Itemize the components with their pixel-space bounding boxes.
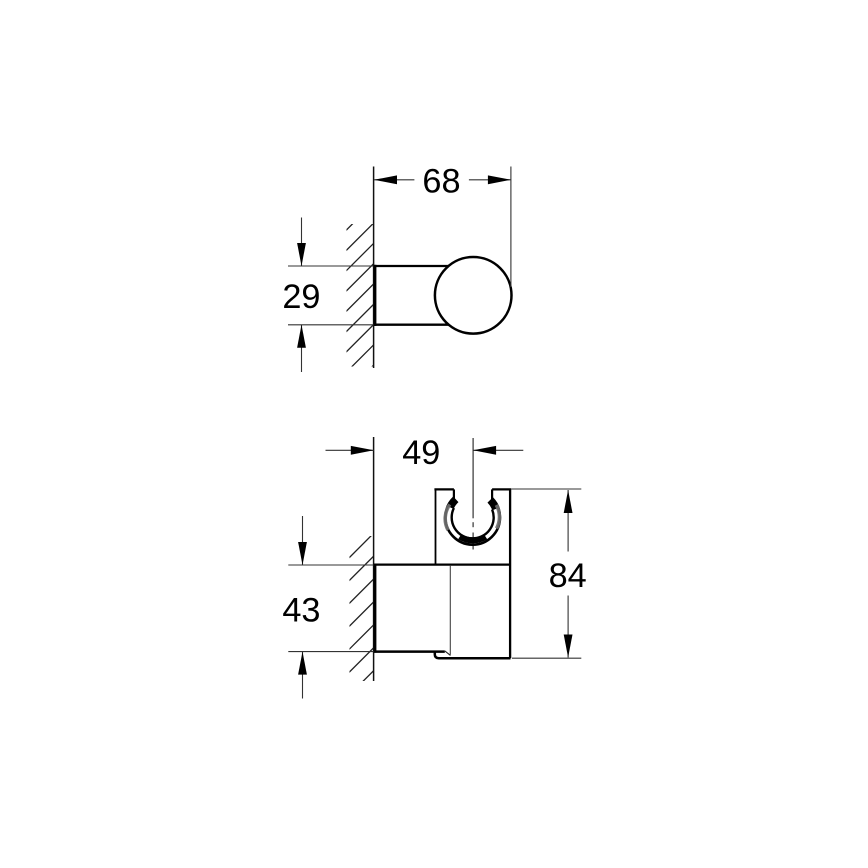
svg-text:49: 49: [402, 434, 440, 472]
svg-text:84: 84: [549, 557, 587, 595]
svg-text:29: 29: [282, 278, 320, 316]
svg-text:43: 43: [282, 592, 320, 630]
svg-text:68: 68: [422, 163, 460, 201]
